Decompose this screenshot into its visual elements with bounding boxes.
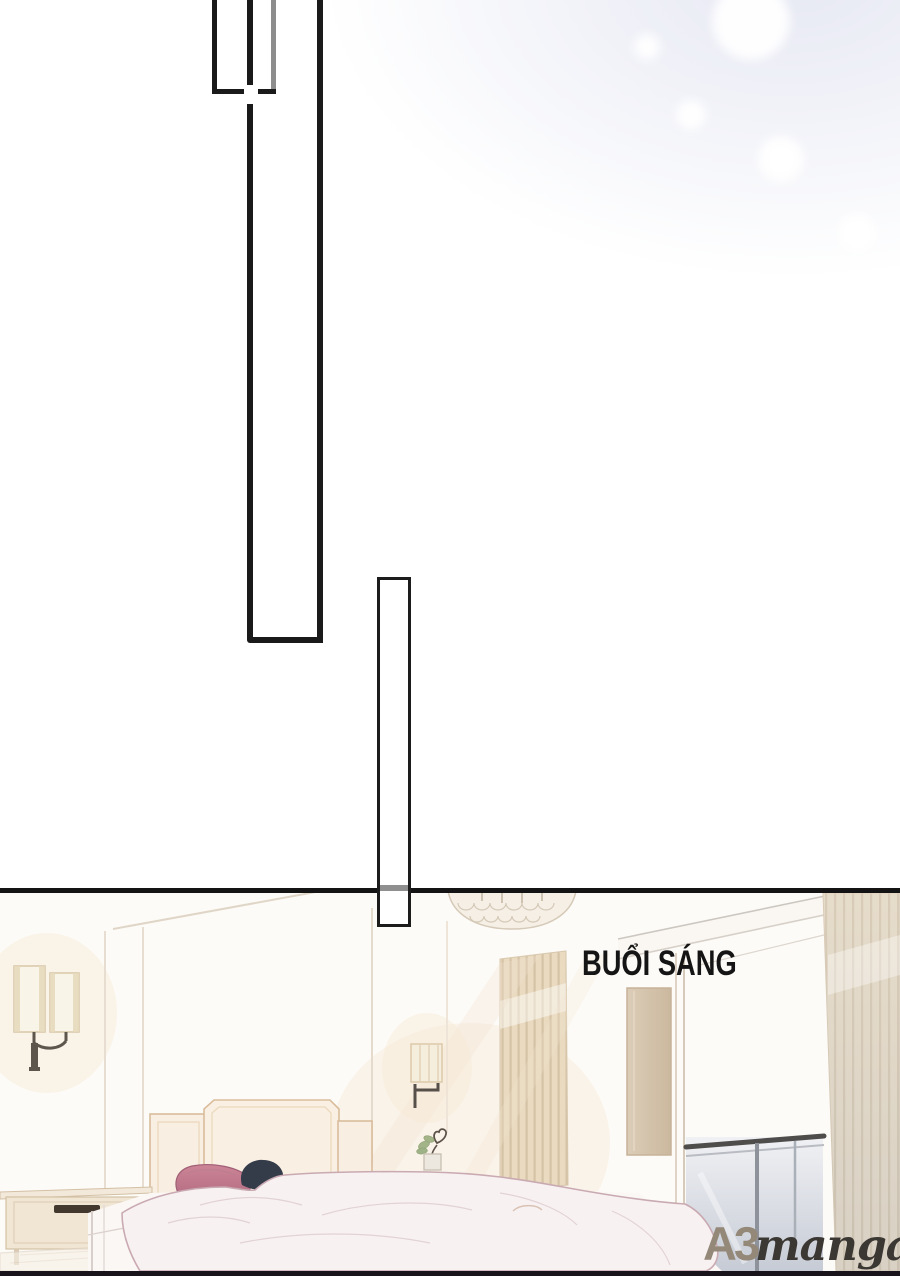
transition-rect-small-bottom-edge (212, 89, 244, 94)
bedroom-scene-panel (0, 893, 900, 1271)
transition-rect-tall-right-edge (317, 0, 323, 643)
watermark-logo: A3 (703, 1217, 757, 1270)
bokeh-light (758, 136, 804, 182)
divider-behind-rect (380, 885, 408, 891)
watermark-name: manga (755, 1221, 900, 1271)
bokeh-light (634, 34, 660, 60)
transition-rect-small-right-edge (271, 0, 276, 94)
transition-rect-small-bottom-edge (258, 89, 276, 94)
bokeh-light (676, 100, 706, 130)
scene-caption: BUỔI SÁNG (582, 946, 737, 983)
morning-light-tint (0, 0, 900, 460)
transition-rect-narrow (377, 577, 411, 927)
transition-rect-small-left-edge (212, 0, 217, 94)
watermark: A3manga (703, 1216, 900, 1271)
bedroom-illustration (0, 893, 900, 1271)
next-panel-edge (0, 1271, 900, 1276)
transition-rect-tall-left-edge (247, 0, 253, 85)
transition-rect-tall-bottom-edge (247, 637, 323, 643)
bokeh-light (838, 214, 876, 252)
panel-divider (0, 888, 900, 893)
manga-page: BUỔI SÁNG A3manga (0, 0, 900, 1276)
transition-rect-tall-left-edge (247, 104, 253, 640)
vase (424, 1154, 441, 1170)
curtain-right (823, 893, 900, 1271)
sconce-stem (31, 1043, 38, 1069)
